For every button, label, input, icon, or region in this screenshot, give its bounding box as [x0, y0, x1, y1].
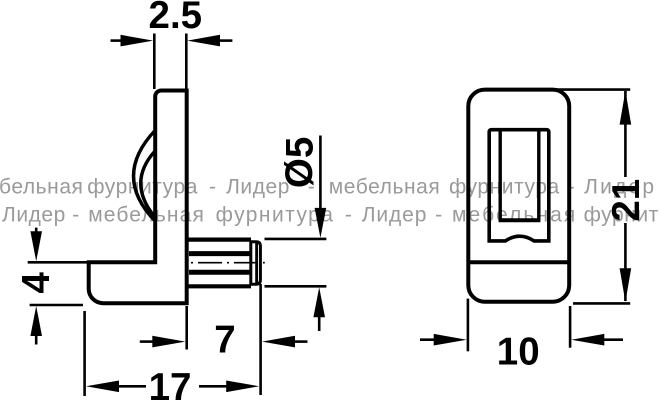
svg-text:Лидер: Лидер	[362, 204, 428, 227]
svg-text:мебельная: мебельная	[452, 204, 577, 227]
svg-text:7: 7	[214, 318, 235, 361]
svg-text:Ø5: Ø5	[279, 137, 322, 188]
svg-text:10: 10	[497, 331, 540, 374]
svg-text:-: -	[435, 204, 443, 227]
svg-text:-: -	[345, 204, 353, 227]
svg-text:мебельная: мебельная	[329, 175, 440, 198]
svg-text:фурнитура: фурнитура	[449, 175, 560, 198]
svg-text:4: 4	[15, 272, 58, 294]
svg-text:Лидер: Лидер	[2, 204, 66, 227]
svg-text:17: 17	[149, 366, 192, 400]
svg-text:21: 21	[605, 179, 648, 222]
svg-text:бельная: бельная	[0, 175, 83, 198]
svg-text:-: -	[209, 175, 217, 198]
svg-text:-: -	[72, 204, 80, 227]
svg-text:2.5: 2.5	[149, 0, 203, 37]
